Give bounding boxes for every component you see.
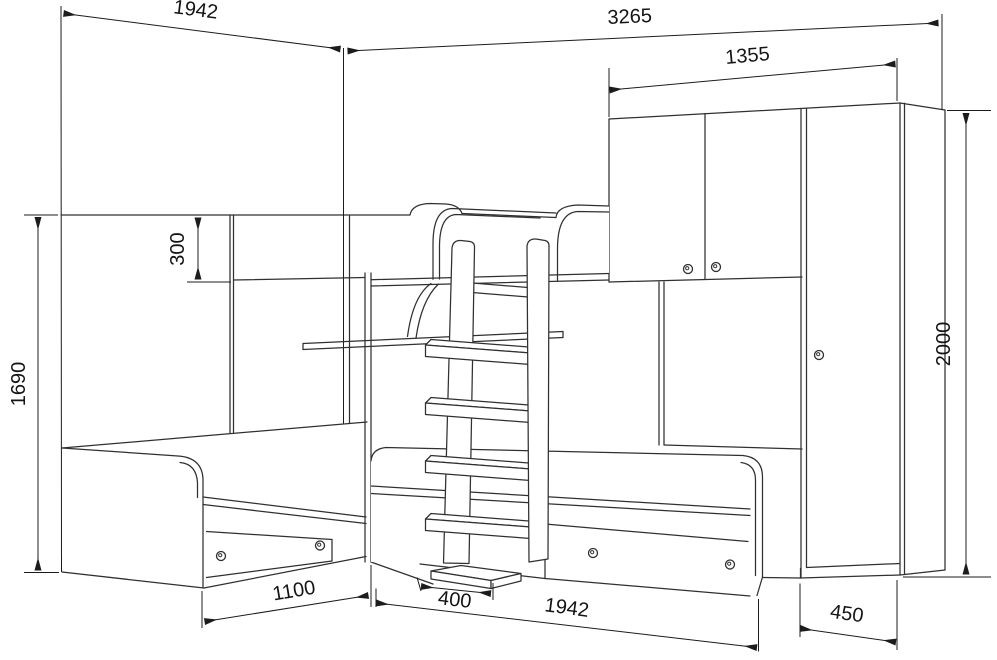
corner-module-base [371, 562, 433, 584]
dim-label-left-section-height: 1690 [8, 362, 30, 407]
dim-label-upper-guard-height: 300 [167, 232, 189, 265]
dim-label-right-bed-length: 1942 [543, 594, 590, 622]
dim-wardrobe-door-width: 450 [800, 580, 897, 650]
dim-label-overall-right-width: 3265 [607, 5, 652, 29]
floor-link-line [763, 578, 800, 579]
ladder-tread-2 [426, 398, 536, 423]
console-curve-a [408, 284, 432, 337]
dim-label-ladder-offset: 400 [437, 587, 473, 613]
ladder-stringer-right [527, 239, 549, 562]
guard-top-line [234, 278, 366, 281]
dim-label-left-bed-front-width: 1100 [271, 577, 317, 606]
niche-bottom-edge [664, 445, 802, 449]
dim-left-bed-length: 1942 [64, 0, 340, 49]
ladder-top-rung [472, 283, 528, 297]
upper-bunk [371, 204, 609, 287]
furniture-technical-drawing: 1942 3265 1355 300 1690 2000 [0, 0, 997, 660]
dim-right-bed-length: 1942 [376, 589, 759, 652]
dim-overall-right-width: 3265 [348, 5, 942, 110]
wardrobe-tall-body [800, 103, 945, 578]
dim-left-section-height: 1690 [8, 215, 59, 573]
ladder-tread-1 [426, 340, 536, 365]
right-bed [365, 273, 763, 596]
console-curve-b [416, 284, 439, 338]
dim-label-wardrobe-door-width: 450 [829, 601, 865, 627]
dim-upper-guard-height: 300 [167, 218, 231, 282]
left-bed [62, 422, 367, 588]
dim-label-wardrobe-total-width: 1355 [724, 43, 770, 69]
dim-label-left-bed-length: 1942 [172, 0, 219, 24]
dim-label-wardrobe-height: 2000 [933, 322, 955, 367]
left-bed-body [62, 422, 367, 588]
wall-left-edge [61, 6, 62, 572]
technical-drawing-page: 1942 3265 1355 300 1690 2000 [0, 0, 997, 660]
